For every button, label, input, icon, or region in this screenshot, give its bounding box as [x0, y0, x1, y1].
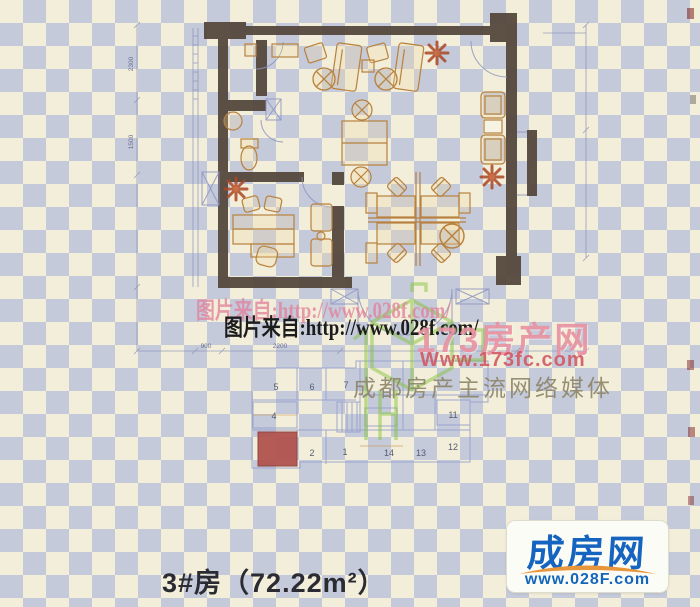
scanned-floorplan-page: 2300 1500 900 2200	[0, 0, 700, 607]
scan-artifacts	[687, 8, 696, 505]
unit-number: 6	[309, 382, 314, 392]
unit-number: 4	[271, 411, 276, 421]
unit-number: 2	[309, 448, 314, 458]
highlighted-unit-3	[258, 432, 297, 466]
brand-url-text: www.028F.com	[507, 571, 668, 589]
dim-left-2: 1500	[128, 134, 135, 149]
chengfangwang-logo: 成房网 www.028F.com	[507, 521, 668, 592]
dim-bottom-1: 900	[201, 343, 212, 350]
watermark-173-tagline: 成都房产主流网络媒体	[353, 369, 613, 403]
dim-left-1: 2300	[128, 56, 135, 71]
dim-bottom-2: 2200	[273, 343, 288, 350]
unit-title-caption: 3#房（72.22m²）	[162, 561, 386, 600]
unit-number: 5	[273, 382, 278, 392]
